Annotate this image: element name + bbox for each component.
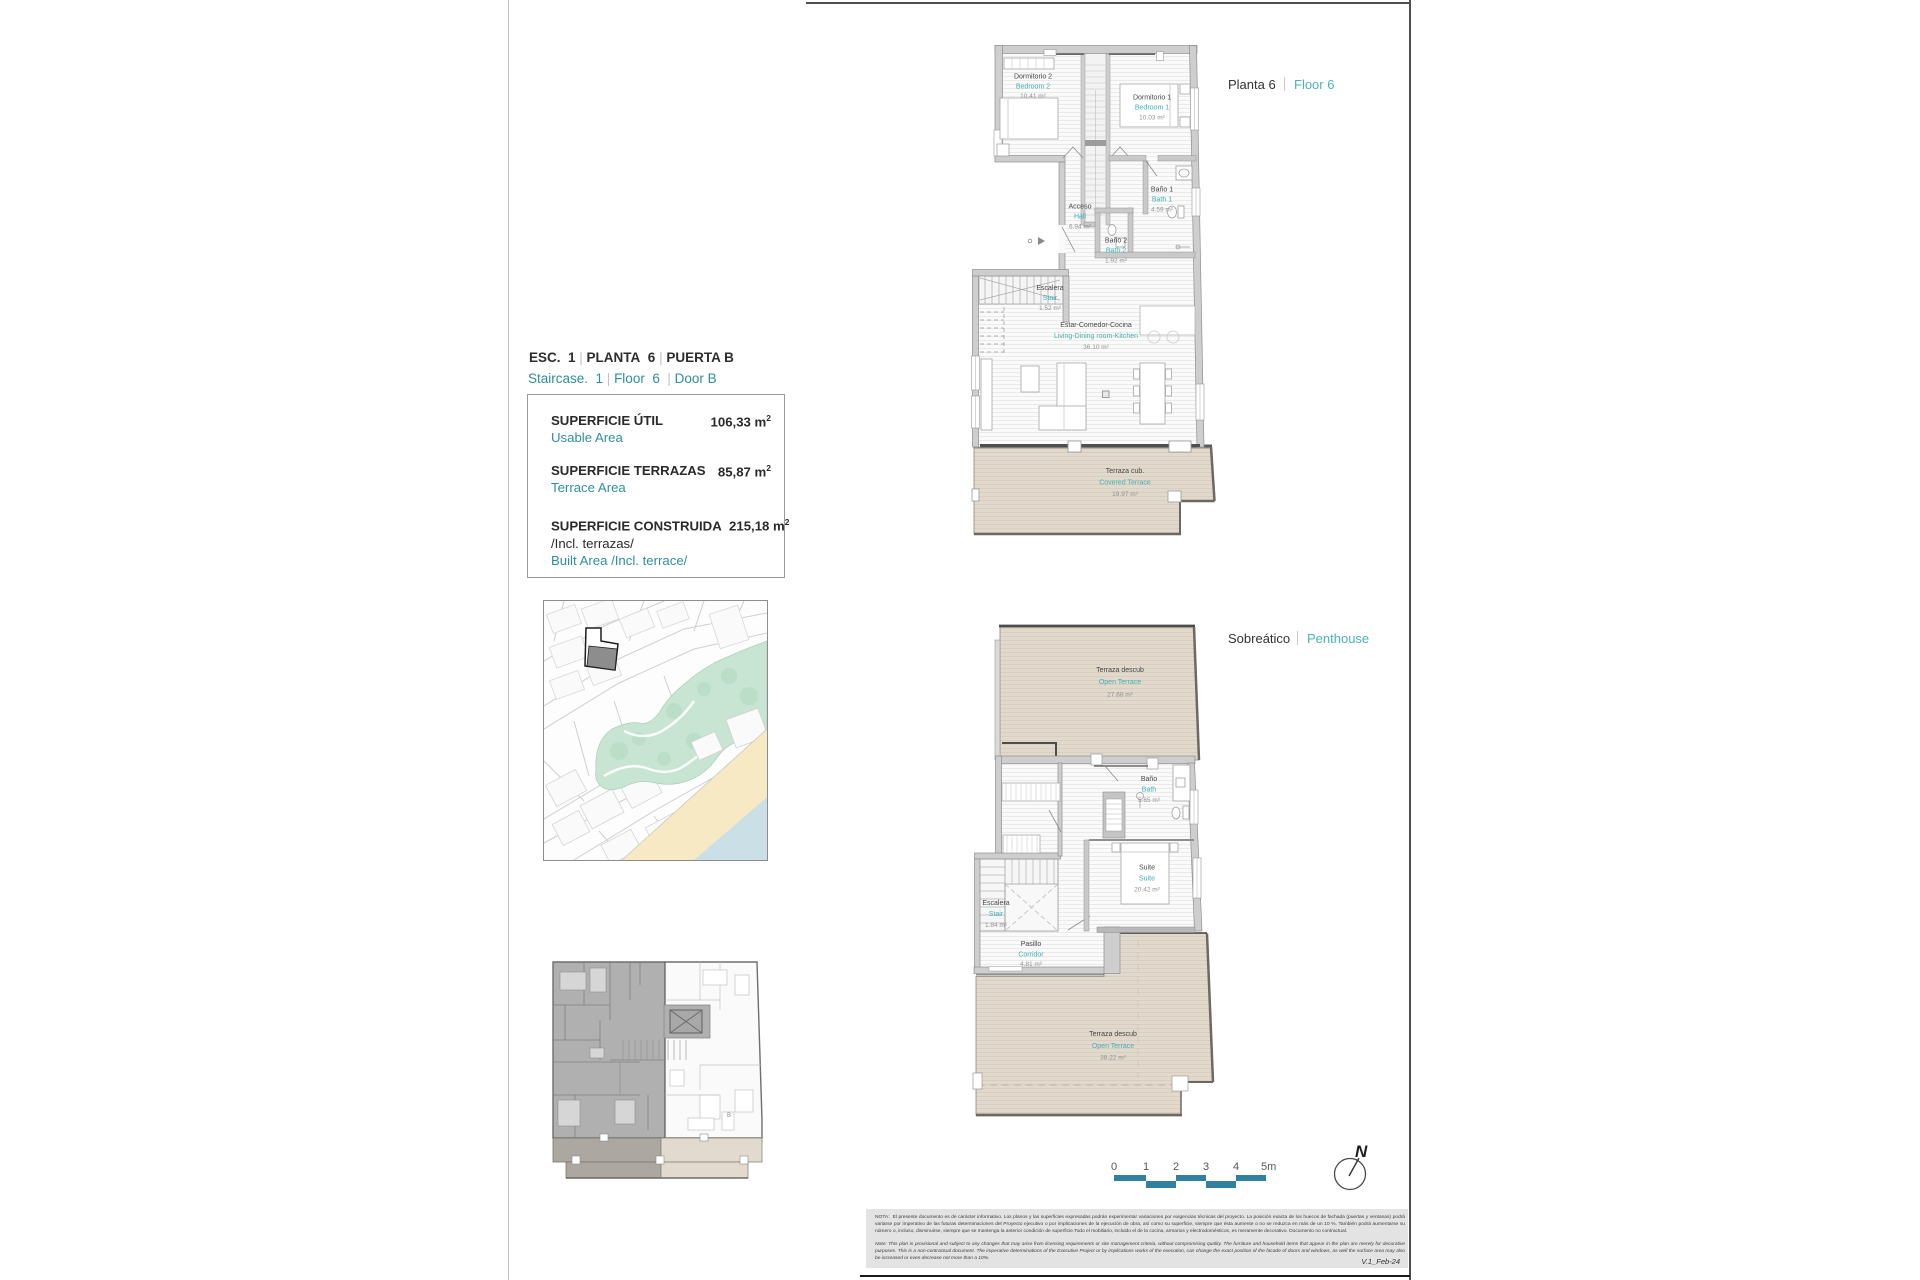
svg-text:Stair: Stair [989, 911, 1004, 918]
svg-text:Covered Terrace: Covered Terrace [1099, 480, 1151, 487]
svg-text:36.10 m²: 36.10 m² [1083, 344, 1109, 351]
svg-text:Baño 1: Baño 1 [1151, 187, 1173, 194]
svg-text:Estar-Comedor-Cocina: Estar-Comedor-Cocina [1060, 322, 1132, 329]
svg-text:Terraza descub: Terraza descub [1089, 1031, 1137, 1038]
svg-text:Acceso: Acceso [1069, 204, 1092, 211]
svg-text:38.22 m²: 38.22 m² [1100, 1055, 1126, 1062]
svg-text:4.81 m²: 4.81 m² [1020, 961, 1043, 968]
svg-text:Escalera: Escalera [982, 900, 1009, 907]
svg-text:Open Terrace: Open Terrace [1092, 1043, 1134, 1050]
svg-text:6.94 m²: 6.94 m² [1069, 224, 1092, 231]
svg-text:27.68 m²: 27.68 m² [1107, 692, 1133, 699]
svg-text:4.59 m²: 4.59 m² [1151, 207, 1174, 214]
svg-text:Bath 1: Bath 1 [1152, 197, 1172, 204]
svg-text:Living-Dining room-Kitchen: Living-Dining room-Kitchen [1054, 333, 1138, 340]
svg-text:1.92 m²: 1.92 m² [1105, 258, 1128, 265]
svg-text:Terraza descub: Terraza descub [1096, 667, 1144, 674]
svg-text:Baño 2: Baño 2 [1105, 238, 1127, 245]
svg-text:5.65 m²: 5.65 m² [1138, 797, 1161, 804]
svg-text:19.97 m²: 19.97 m² [1112, 491, 1138, 498]
svg-text:10.41 m²: 10.41 m² [1020, 93, 1046, 100]
svg-text:Suite: Suite [1139, 865, 1155, 872]
svg-text:Bedroom 2: Bedroom 2 [1016, 84, 1050, 91]
svg-text:Escalera: Escalera [1036, 285, 1063, 292]
svg-text:1.52 m²: 1.52 m² [1039, 305, 1062, 312]
svg-text:N: N [1355, 1142, 1368, 1161]
svg-text:Hall: Hall [1074, 214, 1087, 221]
svg-text:Corridor: Corridor [1018, 952, 1044, 959]
svg-text:20.42 m²: 20.42 m² [1134, 887, 1160, 894]
svg-text:1.84 m²: 1.84 m² [985, 922, 1008, 929]
svg-text:Baño: Baño [1141, 776, 1157, 783]
svg-text:Bath 2: Bath 2 [1106, 248, 1126, 255]
svg-text:Terraza cub.: Terraza cub. [1106, 468, 1145, 475]
svg-text:10.03 m²: 10.03 m² [1139, 115, 1165, 122]
svg-text:B: B [727, 1113, 731, 1119]
svg-text:Stair: Stair [1043, 295, 1058, 302]
svg-text:Dormitorio 1: Dormitorio 1 [1133, 95, 1171, 102]
svg-text:Pasillo: Pasillo [1021, 941, 1042, 948]
svg-text:Open Terrace: Open Terrace [1099, 679, 1141, 686]
svg-text:Dormitorio 2: Dormitorio 2 [1014, 74, 1052, 81]
svg-text:Suite: Suite [1139, 876, 1155, 883]
svg-text:Bath: Bath [1142, 787, 1157, 794]
svg-text:Bedroom 1: Bedroom 1 [1135, 105, 1169, 112]
